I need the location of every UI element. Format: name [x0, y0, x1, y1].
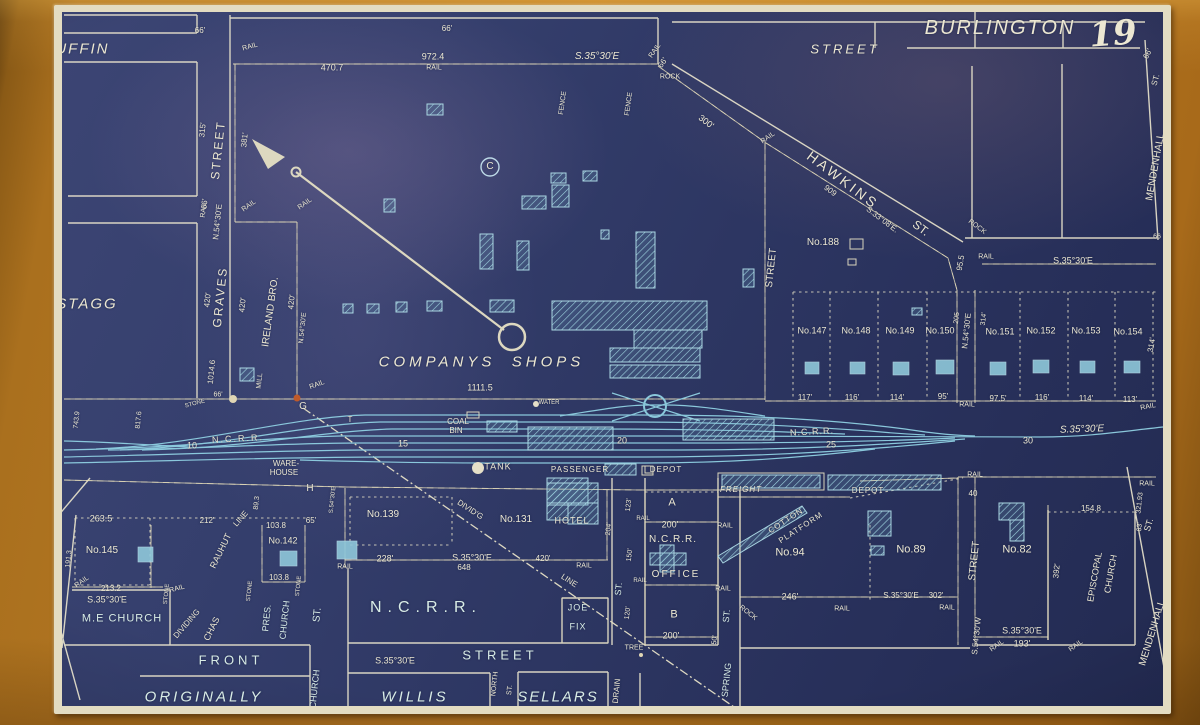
map-label: 193' — [1014, 640, 1031, 649]
map-label: 205 — [953, 312, 961, 324]
map-label: S.35°30'E — [375, 657, 415, 666]
map-label: WARE- — [273, 460, 299, 468]
map-label: ST. — [614, 582, 624, 596]
map-label: CHURCH — [308, 669, 321, 706]
map-label: 66' — [195, 27, 205, 35]
map-label: N.54°30'E — [298, 312, 308, 344]
map-label: 20 — [617, 437, 627, 446]
map-label: DRAIN — [612, 678, 623, 704]
map-label: S.35°30'E — [883, 592, 918, 600]
map-label: 66' — [1142, 48, 1154, 61]
map-label: No.188 — [807, 238, 839, 248]
map-label: A — [668, 498, 675, 509]
map-label: 420' — [287, 294, 297, 310]
map-label: RAIL — [978, 254, 994, 261]
map-label: STONE — [163, 583, 171, 604]
map-label: No.153 — [1071, 327, 1100, 336]
map-label: RAIL — [297, 197, 314, 212]
map-label: RAIL — [959, 402, 975, 409]
map-label: 50' — [711, 635, 719, 645]
map-label: 103.8 — [269, 574, 289, 582]
map-label: RAIL — [760, 131, 777, 146]
map-label: No.154 — [1113, 328, 1142, 337]
map-label: N.54°30'E — [212, 204, 224, 240]
map-label: RAIL — [989, 639, 1006, 654]
map-label: FREIGHT — [720, 486, 762, 494]
map-label: 40 — [969, 490, 978, 498]
map-label: PRES. — [261, 604, 273, 632]
map-label: No.131 — [500, 515, 532, 525]
map-label: No.147 — [797, 327, 826, 336]
map-label: STONE — [184, 398, 205, 409]
map-label: ST. — [1151, 73, 1162, 86]
map-label: 117' — [798, 394, 812, 402]
map-label: 114' — [890, 394, 904, 402]
map-label: 300' — [697, 113, 716, 130]
map-label: No.150 — [925, 327, 954, 336]
map-label: HOTEL — [554, 517, 589, 526]
map-label: G — [299, 402, 307, 412]
map-label: WATER — [539, 400, 560, 406]
map-label: 392' — [1052, 563, 1062, 579]
map-label: 315' — [198, 122, 208, 138]
map-label: CHURCH — [1103, 554, 1119, 594]
map-label: RAIL — [576, 563, 592, 570]
map-label: WILLIS — [381, 690, 448, 705]
map-label: SPRING — [721, 662, 734, 697]
map-label: 30 — [1023, 437, 1033, 446]
map-label: 204' — [605, 522, 613, 536]
map-label: 150' — [626, 548, 634, 562]
map-label: ST. — [506, 685, 514, 696]
blueprint-map: BURLINGTON 19 RUFFIN66'66'972.4RAILS.35°… — [62, 12, 1163, 706]
map-label: 114' — [1079, 395, 1093, 403]
map-label: DEPOT — [650, 466, 683, 474]
map-label: No.151 — [985, 328, 1014, 337]
map-label: 66' — [657, 56, 670, 69]
map-label: No.145 — [86, 546, 118, 556]
map-label: FIX — [569, 623, 586, 632]
map-label: No.152 — [1026, 327, 1055, 336]
map-label: 470.7 — [321, 64, 344, 73]
map-label: DEPOT — [852, 487, 885, 495]
map-label: NORTH — [490, 671, 500, 696]
map-label: HAWKINS — [805, 149, 882, 212]
map-label: IRELAND BRO. — [261, 276, 281, 347]
map-label: 66' — [442, 25, 452, 33]
map-label: JOE — [568, 604, 589, 613]
map-label: 97.5' — [989, 395, 1006, 403]
map-label: N.C.R.R. — [790, 426, 834, 437]
map-label: 420' — [536, 555, 551, 563]
map-label: 420' — [238, 297, 248, 313]
map-label: RAIL — [1139, 481, 1155, 488]
map-label: 200' — [663, 632, 680, 641]
map-label: SELLARS — [517, 690, 599, 705]
map-label: ST. — [910, 218, 931, 238]
map-label: SHOPS — [512, 355, 585, 370]
map-label: RAIL — [939, 605, 955, 612]
map-label: 381' — [240, 132, 250, 148]
map-label: EPISCOPAL — [1086, 551, 1104, 602]
map-label: ROCK — [967, 218, 987, 236]
map-label: No.94 — [775, 548, 804, 559]
map-label: H — [306, 484, 313, 494]
map-label: FENCE — [558, 91, 568, 115]
map-label: T — [348, 416, 353, 424]
map-label: 25 — [826, 441, 836, 450]
map-label: S.35°30'E — [575, 52, 619, 62]
map-label: ST. — [722, 609, 732, 623]
map-label: 1014.6 — [207, 359, 218, 384]
map-label: STREET — [462, 649, 537, 662]
map-label: RAIL — [337, 564, 353, 571]
map-label: OFFICE — [652, 570, 701, 580]
map-label: S.35°30'E — [1060, 424, 1105, 436]
map-label: S.35°30'E — [1053, 257, 1093, 266]
map-label: HOUSE — [270, 469, 298, 477]
map-label: 212' — [200, 517, 215, 525]
map-label: RAIL — [717, 523, 733, 530]
map-label: 123' — [625, 498, 633, 512]
map-label: 246' — [782, 593, 799, 602]
map-label: COAL — [447, 418, 469, 426]
map-label: N.C.R.R. — [370, 600, 482, 616]
map-label: STAGG — [62, 297, 118, 312]
map-label: ORIGINALLY — [145, 690, 264, 705]
map-label: RAIL — [1140, 402, 1157, 412]
map-title-text: BURLINGTON — [925, 18, 1076, 38]
map-label: 95' — [938, 393, 948, 401]
map-label: 420' — [203, 292, 213, 308]
map-label: DIVIDING — [172, 608, 201, 640]
map-label: 120' — [624, 606, 632, 620]
map-label: 1111.5 — [467, 384, 493, 393]
map-label: STONE — [246, 580, 254, 601]
map-label: No.142 — [268, 537, 297, 546]
map-label: RAIL — [242, 42, 259, 53]
map-label: TREE — [625, 645, 644, 652]
map-label: BIN — [449, 427, 462, 435]
map-label: PASSENGER — [551, 466, 609, 474]
map-label: CHAS — [202, 616, 221, 642]
map-label: MENDENHALL — [1138, 599, 1163, 667]
map-label: LINE — [232, 510, 250, 529]
sheet-number: 19 — [1088, 15, 1138, 52]
map-label: STREET — [810, 43, 879, 56]
map-label: STREET — [765, 248, 779, 288]
map-label: 314' — [1147, 337, 1157, 353]
map-label: M.E CHURCH — [82, 614, 162, 625]
map-label: No.89 — [896, 545, 925, 556]
map-label: No.139 — [367, 510, 399, 520]
map-label: RAIL — [169, 584, 186, 595]
map-label: RAIL — [74, 575, 91, 590]
map-label: 263.5 — [90, 515, 113, 524]
map-label: S.35°30'E — [87, 596, 127, 605]
map-label: N.C.R.R. — [212, 433, 264, 445]
map-label: No.148 — [841, 327, 870, 336]
map-label: STONE — [295, 575, 303, 596]
map-label: S.54°30'E — [329, 486, 338, 513]
map-label: ROCK — [738, 604, 758, 622]
map-label: 116' — [1035, 394, 1049, 402]
map-label: 213.2 — [101, 585, 121, 593]
map-label: RAIL — [633, 578, 646, 584]
map-label: 63' — [1136, 522, 1144, 532]
map-label: B — [670, 610, 677, 621]
map-label: RAIL — [1068, 639, 1085, 654]
map-label: S.35°30'E — [452, 554, 492, 563]
map-labels-layer: BURLINGTON 19 RUFFIN66'66'972.4RAILS.35°… — [62, 12, 1163, 706]
map-label: ROCK — [660, 74, 680, 81]
map-label: 200' — [662, 521, 679, 530]
map-label: STREET — [209, 120, 227, 180]
map-label: RUFFIN — [62, 42, 110, 57]
map-label: 909 — [822, 184, 837, 198]
map-label: RAIL — [308, 379, 325, 391]
map-label: RAIL — [426, 65, 442, 72]
framed-blueprint-photo: BURLINGTON 19 RUFFIN66'66'972.4RAILS.35°… — [0, 0, 1200, 725]
map-label: 321.93 — [1135, 492, 1144, 514]
map-label: 66' — [213, 392, 222, 399]
map-label: 743.9 — [73, 411, 82, 429]
map-label: 228' — [377, 555, 394, 564]
map-label: ST. — [1143, 517, 1155, 532]
map-label: 116' — [845, 394, 859, 402]
map-label: N.C.R.R. — [649, 535, 697, 545]
map-label: RAIL — [967, 472, 983, 479]
map-label: 191.3 — [65, 550, 74, 568]
map-label: 65' — [306, 517, 316, 525]
map-label: GRAVES — [211, 266, 229, 328]
map-label: No.149 — [885, 327, 914, 336]
map-label: RAIL — [241, 199, 258, 214]
map-label: 648 — [457, 564, 470, 572]
map-label: TANK — [484, 463, 511, 472]
map-label: MENDENHALL — [1145, 132, 1163, 201]
map-label: 95.5 — [956, 255, 967, 272]
map-label: 817.6 — [135, 411, 144, 429]
map-label: FENCE — [624, 92, 634, 116]
map-label: 972.4 — [422, 53, 445, 62]
map-label: 302' — [929, 592, 944, 600]
map-label: C — [486, 162, 493, 172]
map-label: MILL — [256, 373, 265, 389]
map-label: RAIL — [715, 586, 731, 593]
map-label: DIVID'G — [456, 499, 485, 522]
map-label: RAUHUT — [209, 532, 234, 570]
map-label: 314' — [980, 312, 988, 326]
map-label: FRONT — [199, 654, 264, 667]
map-label: CHURCH — [278, 600, 291, 640]
map-label: S.54°30'W — [971, 617, 983, 655]
map-label: COMPANYS — [379, 355, 496, 370]
map-label: RAIL — [834, 606, 850, 613]
map-label: RAIL — [200, 202, 209, 218]
map-label: 15 — [398, 440, 408, 449]
map-label: LINE — [559, 573, 578, 589]
map-label: S.33°08'E. — [865, 205, 900, 234]
map-label: 89.3 — [253, 496, 261, 510]
map-label: STREET — [968, 541, 982, 581]
map-label: No.82 — [1002, 545, 1031, 556]
map-label: N.54°30'E — [961, 313, 973, 349]
map-label: 154.8 — [1081, 505, 1101, 513]
map-label: RAIL — [636, 516, 649, 522]
map-label: 113' — [1123, 396, 1137, 404]
map-label: 10 — [187, 442, 197, 451]
map-label: S.35°30'E — [1002, 627, 1042, 636]
map-label: ST. — [312, 607, 323, 622]
map-label: 103.8 — [266, 522, 286, 530]
map-label: 66 — [1153, 234, 1161, 241]
